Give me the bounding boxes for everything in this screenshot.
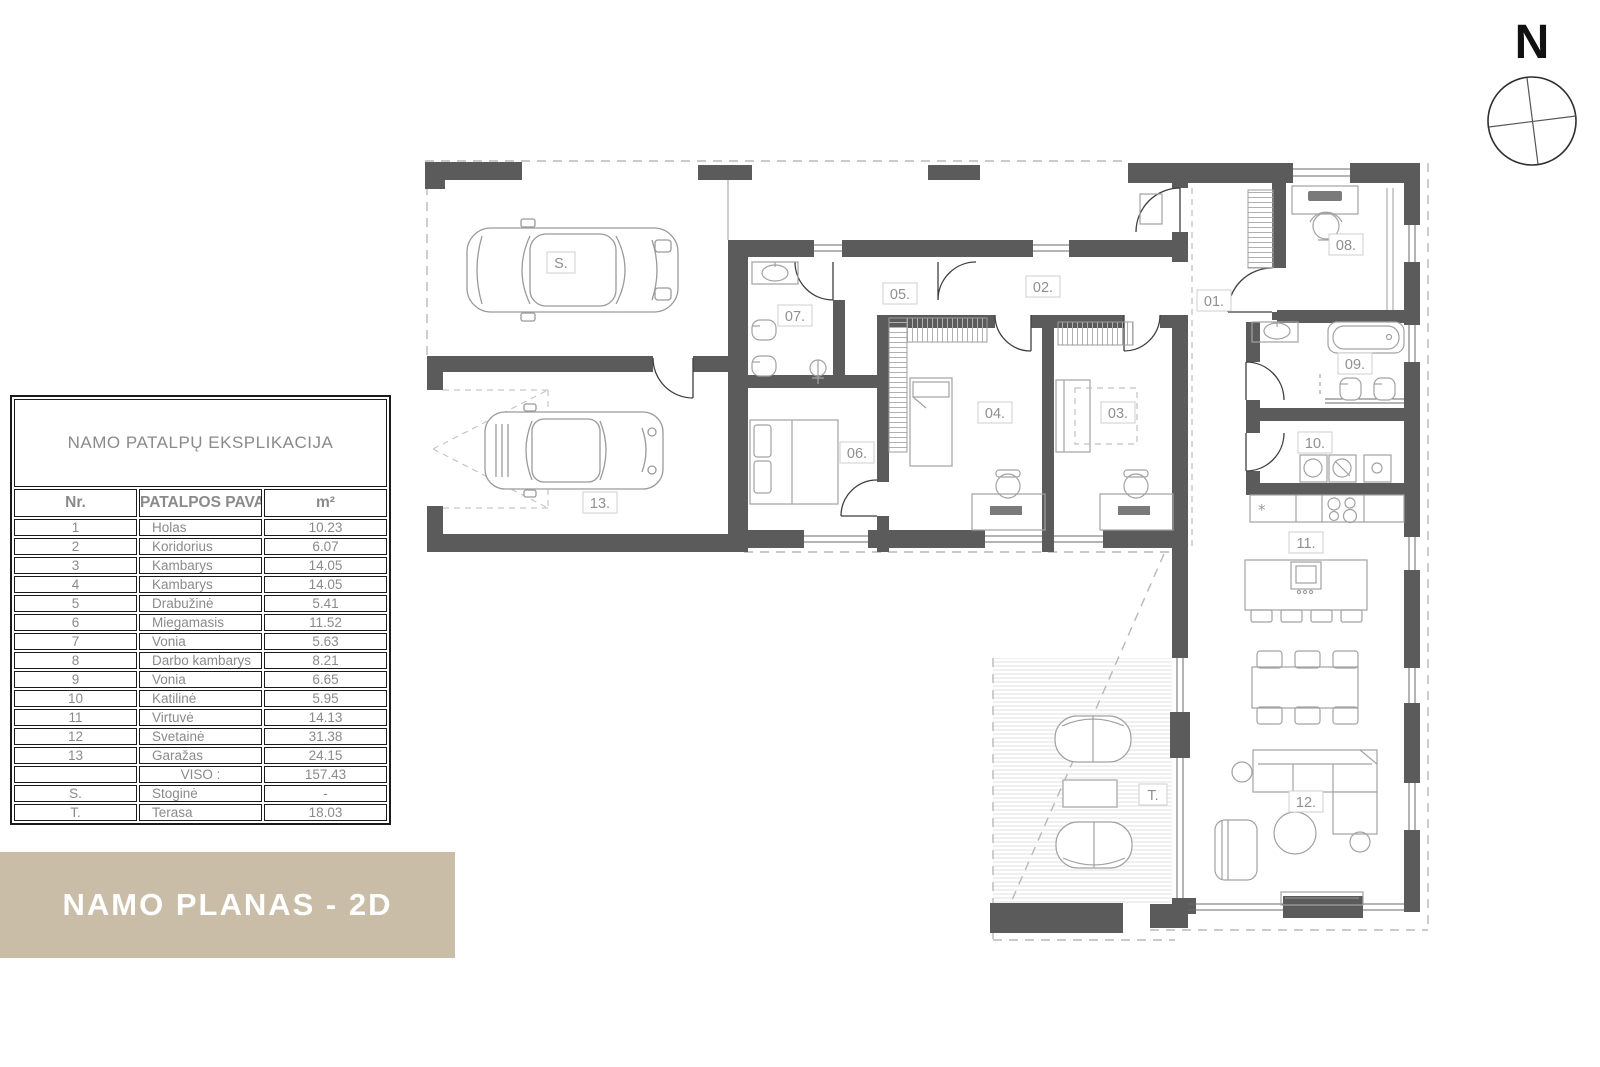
room08-furniture xyxy=(1292,186,1358,240)
hall-ladder xyxy=(1248,190,1273,268)
room06-furniture xyxy=(750,420,838,504)
room-label-11: 11. xyxy=(1289,532,1323,553)
svg-text:12.: 12. xyxy=(1296,795,1316,811)
room-label-13: 13. xyxy=(583,492,617,513)
total-area: 157.43 xyxy=(264,766,387,783)
svg-text:06.: 06. xyxy=(847,446,867,462)
closet-room04-h xyxy=(907,318,987,342)
header-area: m² xyxy=(264,489,387,517)
table-row: 10Katilinė5.95 xyxy=(14,690,387,707)
table-row: 6Miegamasis11.52 xyxy=(14,614,387,631)
table-row: 8Darbo kambarys8.21 xyxy=(14,652,387,669)
svg-text:03.: 03. xyxy=(1108,406,1128,422)
table-row: 3Kambarys14.05 xyxy=(14,557,387,574)
header-nr: Nr. xyxy=(14,489,137,517)
table-total-row: VISO : 157.43 xyxy=(14,766,387,783)
compass-n-label: N xyxy=(1515,16,1550,69)
room-label-08: 08. xyxy=(1329,234,1363,255)
table-header-row: Nr. PATALPOS PAVADINIMAS m² xyxy=(14,489,387,517)
room-label-12: 12. xyxy=(1289,791,1323,812)
svg-text:01.: 01. xyxy=(1204,294,1224,310)
compass: N xyxy=(1488,16,1576,165)
svg-text:S.: S. xyxy=(554,256,568,272)
svg-text:08.: 08. xyxy=(1336,238,1356,254)
closet-room04-v xyxy=(889,318,907,452)
svg-text:05.: 05. xyxy=(890,287,910,303)
svg-text:04.: 04. xyxy=(985,406,1005,422)
header-name: PATALPOS PAVADINIMAS xyxy=(139,489,262,517)
explication-table: NAMO PATALPŲ EKSPLIKACIJA Nr. PATALPOS P… xyxy=(10,395,391,825)
room-label-02: 02. xyxy=(1026,276,1060,297)
svg-text:10.: 10. xyxy=(1305,436,1325,452)
room-label-05: 05. xyxy=(883,283,917,304)
room11-kitchen: * xyxy=(1245,495,1404,622)
room-label-s: S. xyxy=(547,252,575,273)
room12-furniture xyxy=(1215,651,1377,905)
room-label-06: 06. xyxy=(840,442,874,463)
room-label-09: 09. xyxy=(1338,353,1372,374)
total-label: VISO : xyxy=(139,766,262,783)
page: * xyxy=(0,0,1600,1067)
svg-text:02.: 02. xyxy=(1033,280,1053,296)
table-row: 13Garažas24.15 xyxy=(14,747,387,764)
room-label-t: T. xyxy=(1139,784,1167,805)
room10-appliances xyxy=(1300,455,1391,482)
table-row: 9Vonia6.65 xyxy=(14,671,387,688)
table-title-row: NAMO PATALPŲ EKSPLIKACIJA xyxy=(14,399,387,487)
room09-fixtures xyxy=(1252,322,1404,400)
table-row: 12Svetainė31.38 xyxy=(14,728,387,745)
room04-furniture xyxy=(910,378,1045,530)
room-label-03: 03. xyxy=(1101,402,1135,423)
table-row: 1Holas10.23 xyxy=(14,519,387,536)
room-label-07: 07. xyxy=(778,305,812,326)
table-row: 2Koridorius6.07 xyxy=(14,538,387,555)
closet-room03 xyxy=(1058,322,1133,345)
room-label-01: 01. xyxy=(1197,290,1231,311)
table-row: S.Stoginė- xyxy=(14,785,387,802)
compass-needle xyxy=(1489,78,1576,164)
table-row: 7Vonia5.63 xyxy=(14,633,387,650)
svg-text:13.: 13. xyxy=(590,496,610,512)
room-label-04: 04. xyxy=(978,402,1012,423)
svg-text:09.: 09. xyxy=(1345,357,1365,373)
plan-title-banner: NAMO PLANAS - 2D xyxy=(0,852,455,958)
table-row: 5Drabužinė5.41 xyxy=(14,595,387,612)
svg-text:07.: 07. xyxy=(785,309,805,325)
table-row: 4Kambarys14.05 xyxy=(14,576,387,593)
svg-text:11.: 11. xyxy=(1296,536,1315,552)
table-row: T.Terasa18.03 xyxy=(14,804,387,821)
table-row: 11Virtuvė14.13 xyxy=(14,709,387,726)
plan-title-text: NAMO PLANAS - 2D xyxy=(63,887,393,923)
room-label-10: 10. xyxy=(1298,432,1332,453)
table-title: NAMO PATALPŲ EKSPLIKACIJA xyxy=(14,399,387,487)
garage-car xyxy=(485,404,663,497)
svg-text:T.: T. xyxy=(1147,788,1158,804)
svg-text:*: * xyxy=(1258,501,1266,519)
